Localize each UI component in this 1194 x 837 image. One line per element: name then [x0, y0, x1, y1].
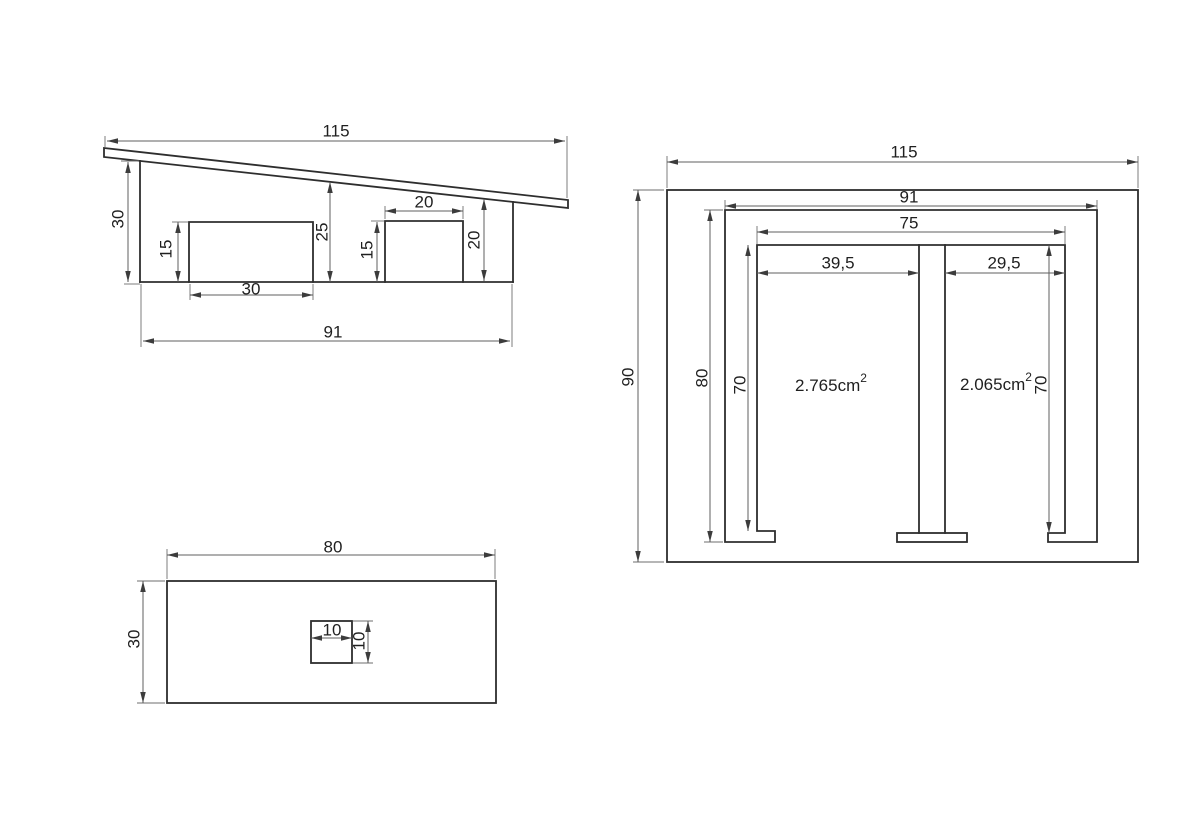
dim-label-base-width: 91 [324, 323, 343, 342]
right-chamber-area-label: 2.065cm2 [960, 370, 1032, 394]
front-view: 115 91 75 39,5 29,5 90 80 70 70 [619, 143, 1139, 563]
dim-label-plate-width: 80 [324, 538, 343, 557]
dim-label-left-opening: 39,5 [821, 254, 854, 273]
dim-label-block-height: 15 [157, 240, 176, 259]
left-chamber-area-label: 2.765cm2 [795, 371, 867, 395]
center-column-foot [897, 533, 967, 542]
dim-label-hole-height: 10 [350, 632, 369, 651]
dim-label-block-width: 30 [242, 280, 261, 299]
side-view: 115 30 15 30 25 15 20 20 91 [104, 122, 568, 348]
dim-label-right-height: 20 [465, 231, 484, 250]
technical-drawing-canvas: 115 30 15 30 25 15 20 20 91 [0, 0, 1194, 837]
middle-block-outline [189, 222, 313, 282]
dim-label-hole-width: 10 [323, 621, 342, 640]
dim-label-front-inner-width: 75 [900, 214, 919, 233]
dim-label-right-opening: 29,5 [987, 254, 1020, 273]
dim-label-front-outer-width: 91 [900, 188, 919, 207]
channel-outline [385, 221, 463, 282]
dim-label-front-inner-height: 80 [693, 369, 712, 388]
dim-label-mid-height: 25 [313, 223, 332, 242]
dim-label-channel-width: 20 [415, 193, 434, 212]
dim-label-front-total-height: 90 [619, 368, 638, 387]
bottom-plate-outline [167, 581, 496, 703]
bottom-view: 80 30 10 10 [125, 538, 497, 704]
dim-label-right-chamber-height: 70 [1032, 376, 1051, 395]
dim-label-left-chamber-height: 70 [731, 376, 750, 395]
drawing-page: 115 30 15 30 25 15 20 20 91 [0, 0, 1194, 837]
dim-label-plate-height: 30 [125, 630, 144, 649]
dim-label-left-height: 30 [109, 210, 128, 229]
roof-plank-outline [104, 148, 568, 208]
dim-label-channel-height: 15 [358, 241, 377, 260]
dim-label-front-total-width: 115 [890, 143, 917, 162]
dim-label-total-width: 115 [322, 122, 349, 141]
